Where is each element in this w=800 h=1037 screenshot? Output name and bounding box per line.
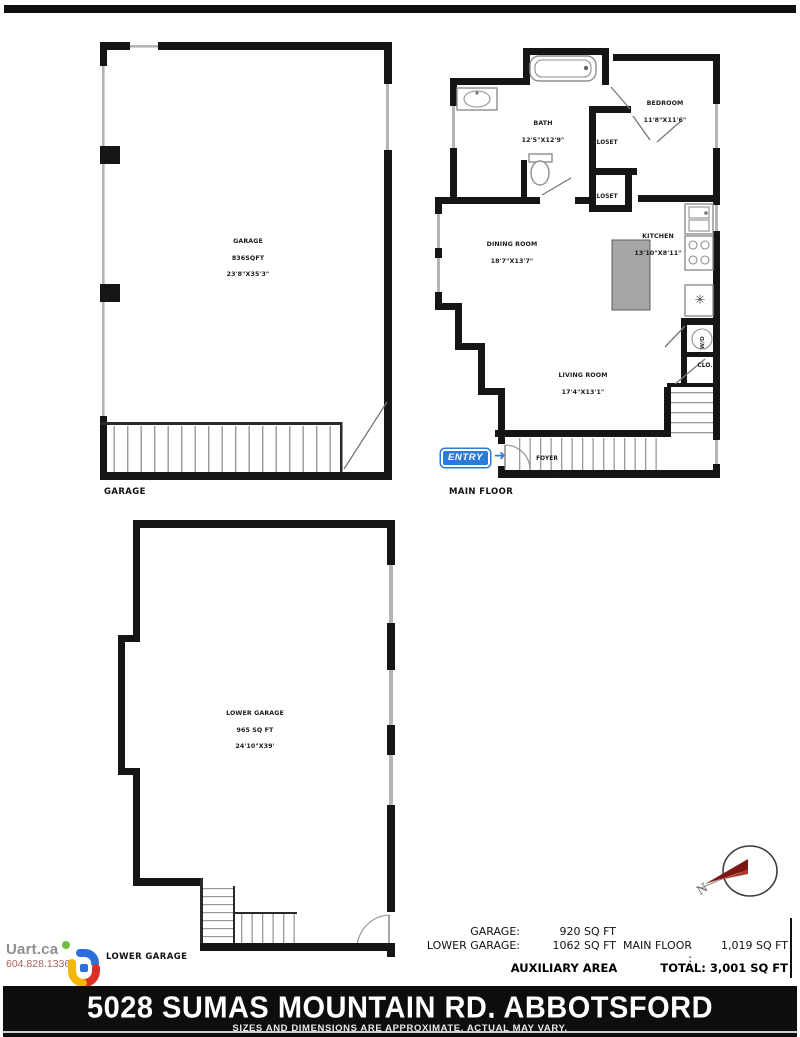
entry-arrow-icon: ➜ [494, 448, 506, 464]
living-name: LIVING ROOM [558, 372, 607, 379]
summary-lower-garage-value: 1062 SQ FT [530, 939, 616, 952]
foyer-dims: 19'5"X5'5" [529, 471, 564, 477]
kitchen-label: KITCHEN 13'10"X8'11" [616, 225, 700, 258]
lower-garage-caption: LOWER GARAGE [106, 952, 187, 962]
kitchen-dims: 13'10"X8'11" [634, 250, 681, 257]
bath-name: BATH [533, 120, 552, 127]
garage-dims: 23'8"X35'3" [227, 271, 270, 278]
lower-garage-plan: LOWER GARAGE 965 SQ FT 24'10"X39' [115, 520, 395, 957]
entry-badge: ENTRY [441, 449, 490, 467]
summary-lower-garage-label: LOWER GARAGE: [420, 939, 530, 952]
garage-stairs [100, 422, 343, 472]
living-dims: 17'4"X13'1" [562, 389, 605, 396]
clo-label: CLO. [685, 363, 725, 371]
dining-dims: 18'7"X13'7" [491, 258, 534, 265]
bath-label: BATH 12'5"X12'9" [500, 112, 586, 145]
lower-garage-name: LOWER GARAGE [226, 710, 284, 717]
garage-room-label: GARAGE 836SQFT 23'8"X35'3" [198, 230, 298, 279]
compass: N [695, 840, 795, 910]
kitchen-name: KITCHEN [642, 233, 674, 240]
foyer-name: FOYER [536, 456, 558, 462]
garage-caption: GARAGE [104, 487, 146, 497]
summary-lower-garage-row: LOWER GARAGE: 1062 SQ FT [420, 939, 616, 952]
dining-name: DINING ROOM [487, 241, 538, 248]
auxiliary-area-label: AUXILIARY AREA [497, 961, 631, 975]
bedroom-name: BEDROOM [647, 100, 684, 107]
summary-garage-row: GARAGE: 920 SQ FT [420, 925, 616, 938]
bath-dims: 12'5"X12'9" [522, 137, 565, 144]
bathtub-icon [530, 56, 596, 81]
main-floor-caption: MAIN FLOOR [449, 487, 513, 497]
dining-label: DINING ROOM 18'7"X13'7" [470, 233, 554, 266]
total-label: TOTAL: [660, 961, 705, 975]
bottom-border-bar [3, 1033, 797, 1037]
top-border-bar [4, 5, 796, 13]
foyer-label: FOYER 19'5"X5'5" [507, 448, 587, 478]
main-floor-plan: BATH 12'5"X12'9" BEDROOM 11'8"X11'6" CLO… [435, 42, 725, 482]
fridge-snowflake-icon: ✳ [687, 292, 713, 308]
summary-garage-label: GARAGE: [420, 925, 530, 938]
north-needle [705, 859, 748, 884]
garage-plan: GARAGE 836SQFT 23'8"X35'3" [100, 42, 392, 480]
closet-bottom-label: CLOSET [575, 194, 635, 202]
lower-garage-stairs [200, 878, 297, 950]
logo-u-icon [64, 947, 104, 989]
garage-name: GARAGE [233, 238, 263, 245]
lower-garage-dims: 24'10"X39' [235, 743, 274, 750]
disclaimer-bar: SIZES AND DIMENSIONS ARE APPROXIMATE, AC… [3, 1018, 797, 1031]
summary-divider [790, 918, 792, 978]
pilaster [100, 146, 120, 164]
pilaster [100, 284, 120, 302]
closet-top-label: CLOSET [575, 140, 635, 148]
bedroom-dims: 11'8"X11'6" [644, 117, 687, 124]
total-area: TOTAL: 3,001 SQ FT [648, 961, 788, 975]
washer-dryer-label: W/D [700, 329, 706, 349]
toilet-icon [529, 154, 552, 185]
company-logo: Uart.ca 604.828.1336 [6, 941, 114, 987]
total-value: 3,001 SQ FT [710, 961, 788, 975]
living-label: LIVING ROOM 17'4"X13'1" [541, 364, 625, 397]
stairs-up [671, 390, 713, 434]
lower-garage-area: 965 SQ FT [237, 727, 274, 734]
bathroom-sink-icon [457, 88, 497, 110]
garage-area: 836SQFT [232, 255, 264, 262]
garage-door-leaf [344, 402, 387, 469]
floorplan-page: { "branding": {"company": "Uart.ca", "ph… [0, 0, 800, 1037]
bedroom-label: BEDROOM 11'8"X11'6" [623, 92, 707, 125]
summary-garage-value: 920 SQ FT [530, 925, 616, 938]
compass-rose [695, 840, 795, 910]
lower-garage-room-label: LOWER GARAGE 965 SQ FT 24'10"X39' [203, 702, 307, 751]
